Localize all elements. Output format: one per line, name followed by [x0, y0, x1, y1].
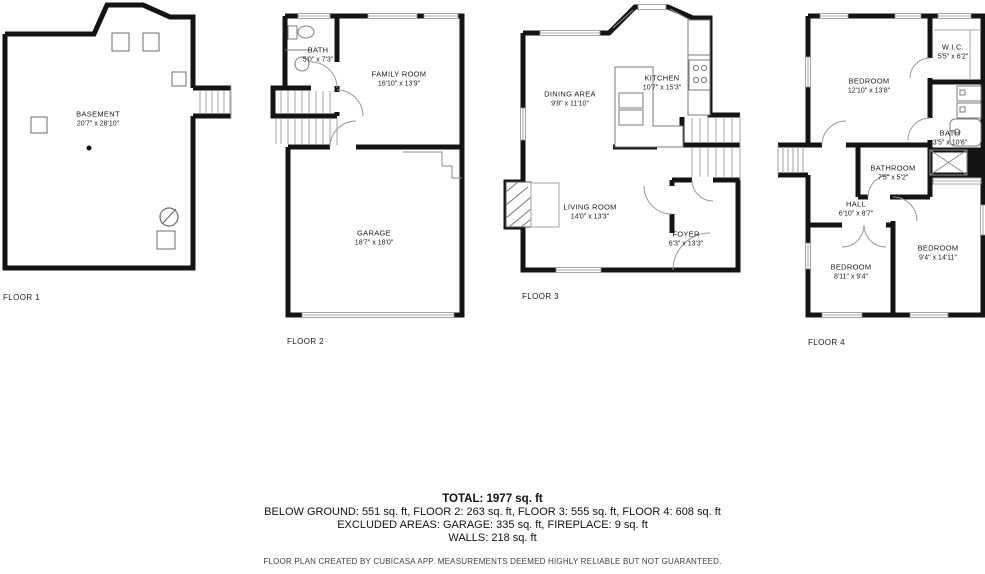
room-name: BATH	[303, 46, 334, 56]
room-dims: 5'5" x 6'2"	[938, 52, 969, 61]
room-label-garage: GARAGE 18'7" x 18'0"	[355, 229, 393, 248]
room-dims: 18'7" x 18'0"	[355, 238, 393, 247]
room-dims: 9'4" x 14'11"	[918, 253, 959, 262]
walls-area-line: WALLS: 218 sq. ft	[0, 532, 985, 545]
room-label-kitchen: KITCHEN 10'7" x 15'3"	[643, 74, 681, 93]
floor-1-stairs	[200, 86, 231, 118]
room-name: BEDROOM	[918, 244, 959, 254]
room-label-basement: BASEMENT 20'7" x 28'10"	[76, 110, 120, 129]
disclaimer-text: FLOOR PLAN CREATED BY CUBICASA APP. MEAS…	[0, 557, 985, 566]
floor-1-support-posts	[31, 33, 186, 249]
room-name: BEDROOM	[848, 77, 890, 87]
room-dims: 9'8" x 11'10"	[544, 99, 596, 108]
room-name: FOYER	[669, 230, 704, 240]
room-dims: 6'3" x 13'3"	[669, 239, 704, 248]
room-name: HALL	[839, 200, 874, 210]
floor-3-door-arcs	[644, 180, 713, 270]
laundry-appliances	[957, 86, 981, 118]
room-dims: 10'7" x 15'3"	[643, 83, 681, 92]
room-label-foyer: FOYER 6'3" x 13'3"	[669, 230, 704, 249]
floor-4-stairs	[778, 145, 803, 175]
floor-2-label: FLOOR 2	[287, 337, 324, 346]
floor-4-label: FLOOR 4	[808, 338, 845, 347]
room-label-dining-area: DINING AREA 9'8" x 11'10"	[544, 90, 596, 109]
room-name: LIVING ROOM	[563, 203, 616, 213]
room-label-wic: W.I.C. 5'5" x 6'2"	[938, 43, 969, 62]
room-name: FAMILY ROOM	[372, 70, 427, 80]
room-label-bedroom-2: BEDROOM 8'11" x 9'4"	[831, 263, 872, 282]
room-dims: 8'11" x 9'4"	[831, 272, 872, 281]
room-label-hall: HALL 6'10" x 8'7"	[839, 200, 874, 219]
room-dims: 3'5" x 10'6"	[933, 138, 968, 147]
room-label-living-room: LIVING ROOM 14'0" x 13'3"	[563, 203, 616, 222]
floor-1-label: FLOOR 1	[3, 293, 40, 302]
excluded-areas-line: EXCLUDED AREAS: GARAGE: 335 sq. ft, FIRE…	[0, 519, 985, 532]
room-label-bedroom-1: BEDROOM 12'10" x 13'8"	[848, 77, 890, 96]
chimney-chase-block	[967, 150, 983, 175]
floor-drain-dot	[87, 146, 92, 151]
floor-areas-line: BELOW GROUND: 551 sq. ft, FLOOR 2: 263 s…	[0, 506, 985, 519]
floor-4-skylight-void	[930, 150, 967, 175]
room-name: BATHROOM	[870, 164, 915, 174]
room-dims: 5'0" x 7'3"	[303, 55, 334, 64]
room-label-bedroom-3: BEDROOM 9'4" x 14'11"	[918, 244, 959, 263]
area-summary: TOTAL: 1977 sq. ft BELOW GROUND: 551 sq.…	[0, 493, 985, 545]
electric-meter-icon	[160, 208, 178, 226]
floor-1-plan	[5, 5, 231, 268]
room-name: BEDROOM	[831, 263, 872, 273]
room-label-bathroom: BATHROOM 7'5" x 5'2"	[870, 164, 915, 183]
floor-plan-page: BASEMENT 20'7" x 28'10" BATH 5'0" x 7'3"…	[0, 0, 985, 574]
room-name: GARAGE	[355, 229, 393, 239]
floor-3-label: FLOOR 3	[522, 292, 559, 301]
garage-step-detail	[403, 152, 462, 178]
room-dims: 12'10" x 13'8"	[848, 86, 890, 95]
fireplace-icon	[506, 182, 559, 227]
room-name: KITCHEN	[643, 74, 681, 84]
room-dims: 16'10" x 13'9"	[372, 79, 427, 88]
floor-plan-canvas	[0, 0, 985, 480]
room-dims: 7'5" x 5'2"	[870, 173, 915, 182]
room-label-bath-f4: BATH 3'5" x 10'6"	[933, 129, 968, 148]
bedroom-closet-band	[933, 178, 981, 184]
room-label-family-room: FAMILY ROOM 16'10" x 13'9"	[372, 70, 427, 89]
floor-2-plan	[273, 14, 462, 318]
room-dims: 14'0" x 13'3"	[563, 212, 616, 221]
room-label-bath-f2: BATH 5'0" x 7'3"	[303, 46, 334, 65]
room-dims: 20'7" x 28'10"	[76, 119, 120, 128]
room-name: BASEMENT	[76, 110, 120, 120]
floor-3-plan	[506, 5, 740, 273]
room-dims: 6'10" x 8'7"	[839, 209, 874, 218]
total-area-line: TOTAL: 1977 sq. ft	[0, 493, 985, 506]
room-name: DINING AREA	[544, 90, 596, 100]
room-name: W.I.C.	[938, 43, 969, 53]
room-name: BATH	[933, 129, 968, 139]
